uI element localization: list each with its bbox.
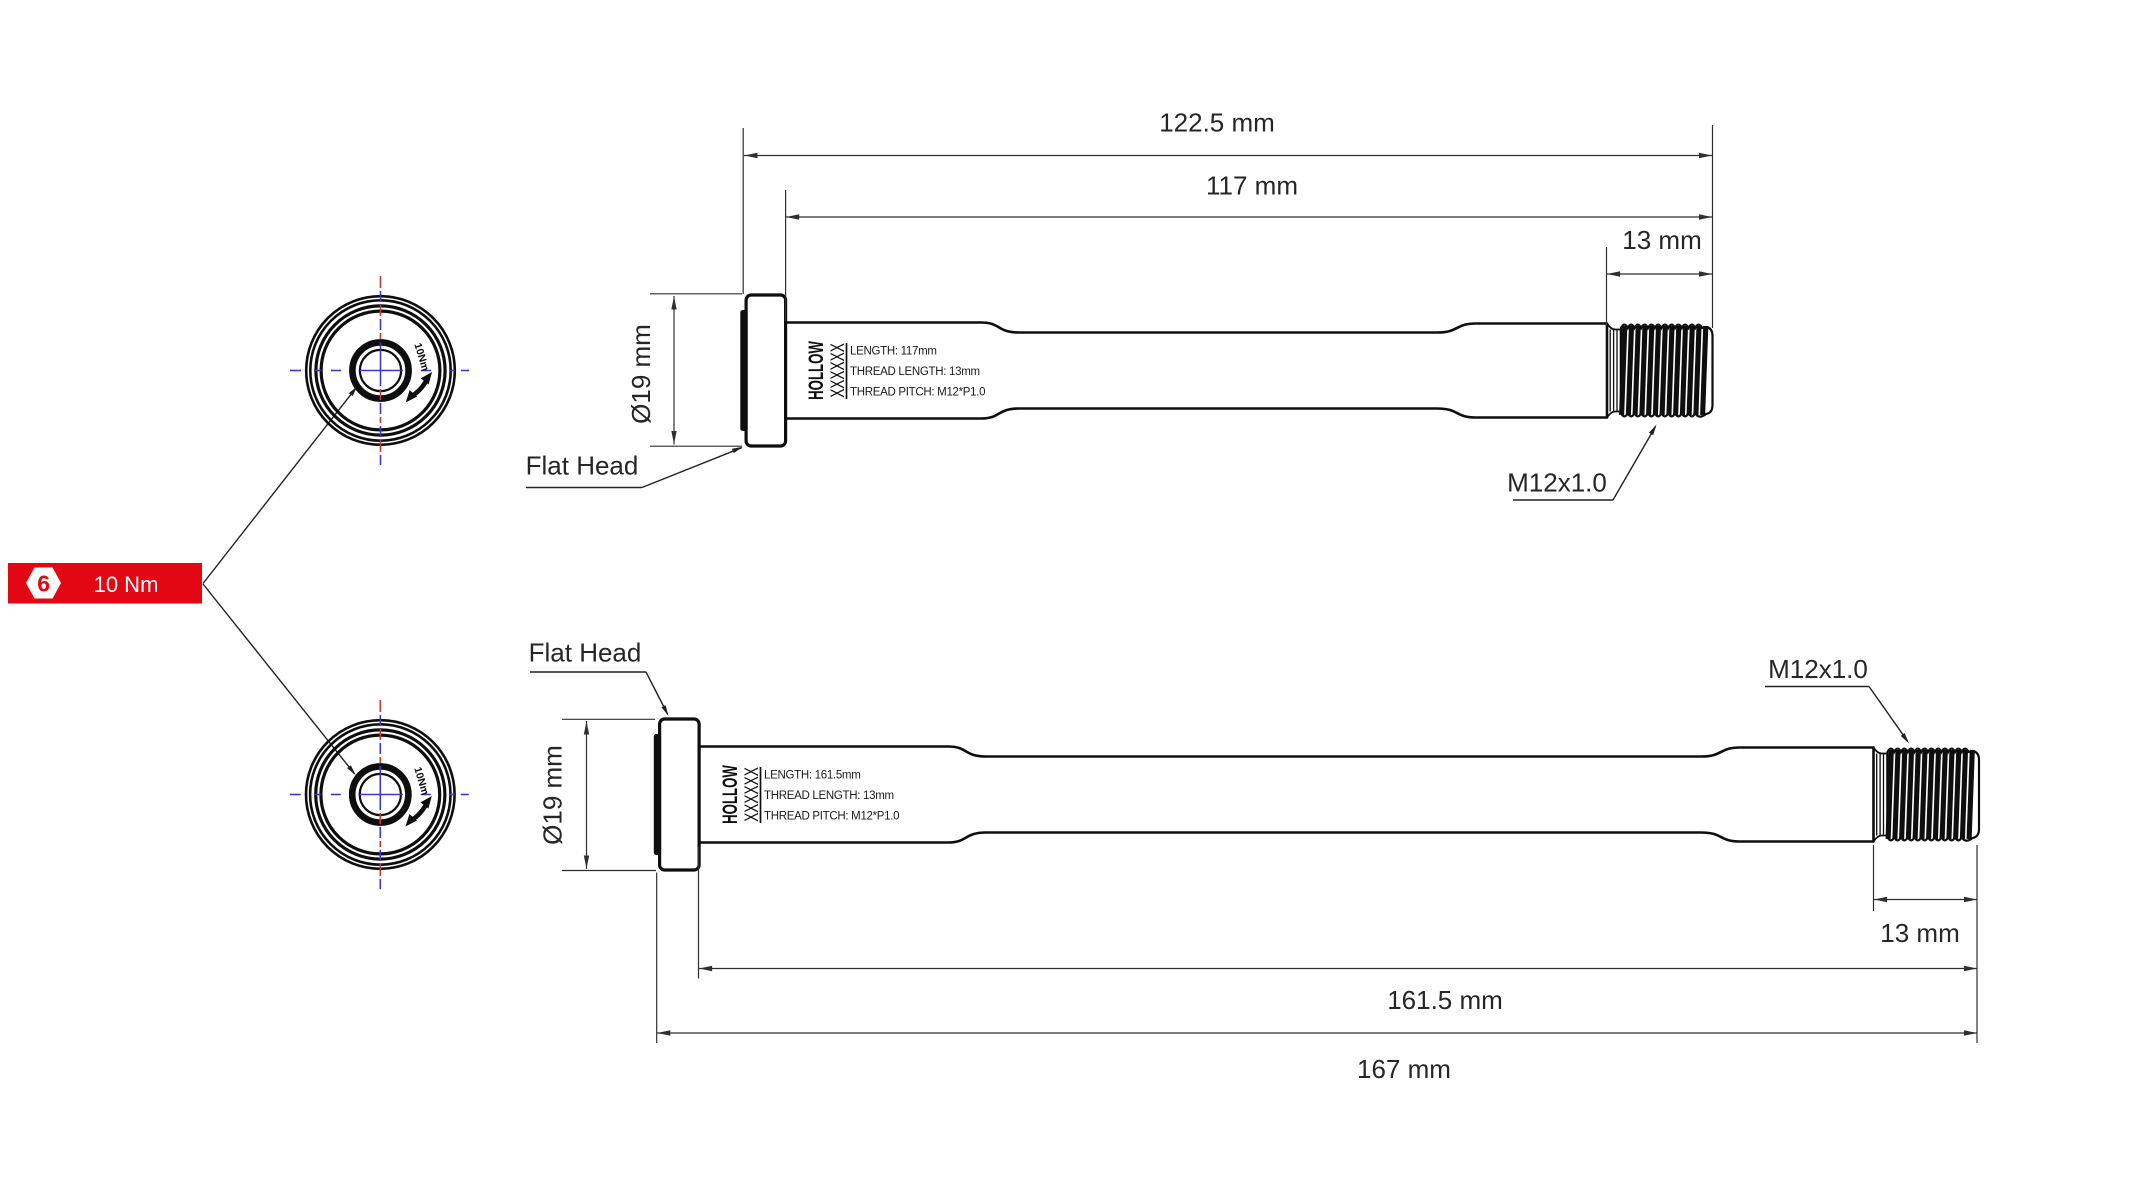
svg-text:XXXXXX: XXXXXX xyxy=(827,343,849,398)
svg-text:Ø19 mm: Ø19 mm xyxy=(626,324,656,424)
svg-text:Flat Head: Flat Head xyxy=(529,638,642,668)
svg-text:161.5 mm: 161.5 mm xyxy=(1387,985,1503,1015)
svg-text:122.5 mm: 122.5 mm xyxy=(1159,108,1275,138)
svg-text:167 mm: 167 mm xyxy=(1357,1054,1451,1084)
svg-text:THREAD PITCH: M12*P1.0: THREAD PITCH: M12*P1.0 xyxy=(764,811,899,823)
svg-text:HOLLOW: HOLLOW xyxy=(718,765,742,824)
svg-text:M12x1.0: M12x1.0 xyxy=(1507,468,1607,498)
svg-text:13 mm: 13 mm xyxy=(1622,225,1701,255)
svg-text:6: 6 xyxy=(37,570,50,596)
svg-text:Ø19 mm: Ø19 mm xyxy=(538,745,568,845)
svg-text:13 mm: 13 mm xyxy=(1880,918,1959,948)
svg-text:117 mm: 117 mm xyxy=(1206,171,1298,201)
svg-text:Flat Head: Flat Head xyxy=(526,451,639,481)
svg-text:LENGTH: 161.5mm: LENGTH: 161.5mm xyxy=(764,770,860,782)
svg-text:THREAD PITCH: M12*P1.0: THREAD PITCH: M12*P1.0 xyxy=(850,387,985,399)
svg-text:HOLLOW: HOLLOW xyxy=(804,341,828,400)
svg-text:THREAD LENGTH: 13mm: THREAD LENGTH: 13mm xyxy=(764,790,894,802)
svg-text:XXXXXX: XXXXXX xyxy=(741,767,763,822)
svg-text:THREAD LENGTH: 13mm: THREAD LENGTH: 13mm xyxy=(850,366,980,378)
svg-text:M12x1.0: M12x1.0 xyxy=(1768,654,1868,684)
svg-text:10 Nm: 10 Nm xyxy=(94,572,159,597)
svg-text:LENGTH: 117mm: LENGTH: 117mm xyxy=(850,346,937,358)
